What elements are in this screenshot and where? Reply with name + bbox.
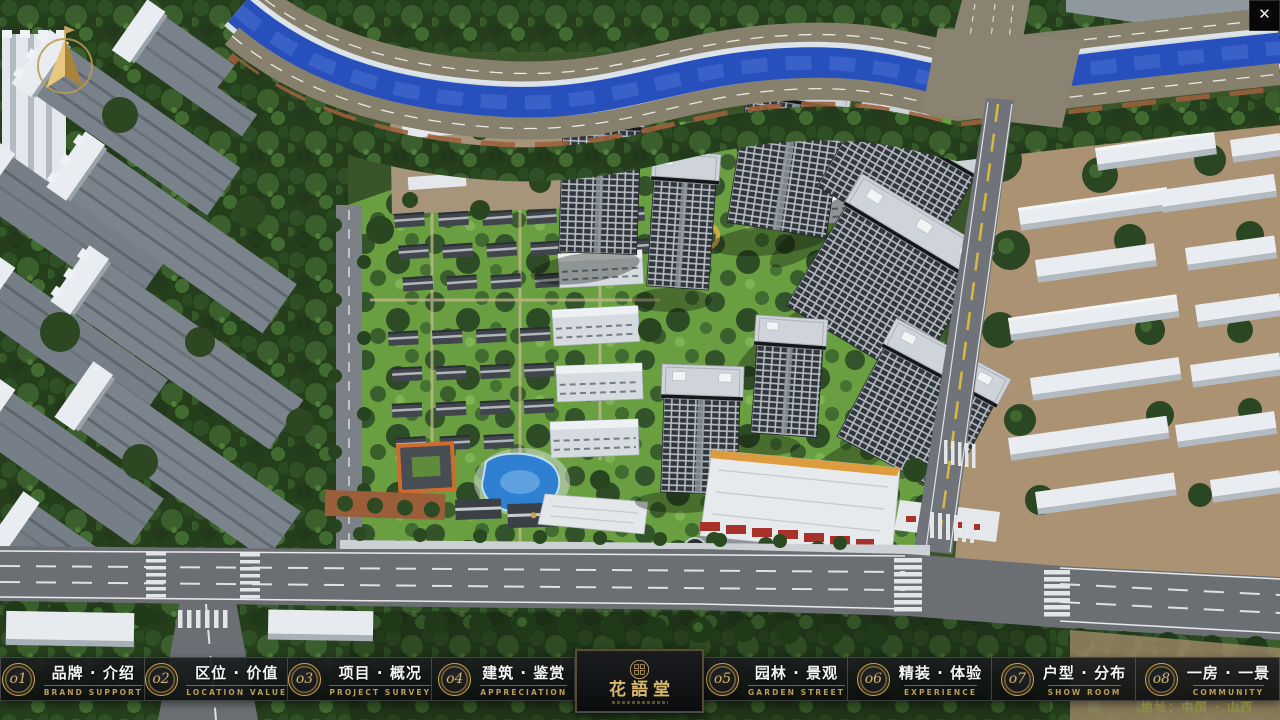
project-name-subtext <box>612 701 668 704</box>
project-address: 地址：中国 · 山西 <box>1141 699 1254 715</box>
nav-item-label-en: LOCATION VALUE <box>186 685 287 697</box>
nav-item-label-en: GARDEN STREET <box>748 685 845 697</box>
nav-item-label-zh: 建筑 · 鉴赏 <box>482 662 565 683</box>
nav-item-badge: o8 <box>1145 663 1178 696</box>
nav-item-label-en: EXPERIENCE <box>904 685 977 697</box>
nav-item-badge: o1 <box>2 663 35 696</box>
nav-item-label-zh: 项目 · 概况 <box>339 662 422 683</box>
close-button[interactable]: ✕ <box>1249 0 1280 31</box>
nav-item-badge: o7 <box>1001 663 1034 696</box>
nav-item-label-en: APPRECIATION <box>480 685 567 697</box>
nav-item-04-architecture[interactable]: o4 建筑 · 鉴赏APPRECIATION <box>432 658 576 700</box>
nav-item-badge: o2 <box>145 663 178 696</box>
nav-item-02-location[interactable]: o2 区位 · 价值LOCATION VALUE <box>145 658 289 700</box>
nav-item-label-zh: 区位 · 价值 <box>195 662 278 683</box>
residential-tower <box>644 150 721 290</box>
nav-group-left: o1 品牌 · 介绍BRAND SUPPORT o2 区位 · 价值LOCATI… <box>0 658 575 700</box>
seal-icon <box>629 659 650 680</box>
nav-item-label-en: BRAND SUPPORT <box>44 685 143 697</box>
orange-clubhouse <box>398 443 454 492</box>
nav-item-label-zh: 户型 · 分布 <box>1043 662 1126 683</box>
site-plan-render <box>0 0 1280 720</box>
nav-item-06-interior[interactable]: o6 精装 · 体验EXPERIENCE <box>848 658 992 700</box>
nav-item-01-brand[interactable]: o1 品牌 · 介绍BRAND SUPPORT <box>0 658 145 700</box>
presentation-stage: ✕ o1 品牌 · 介绍BRAND SUPPORT o2 区位 · 价值LOCA… <box>0 0 1280 720</box>
project-logo-panel[interactable]: 花語堂 <box>575 649 704 713</box>
nav-group-right: o5 园林 · 景观GARDEN STREET o6 精装 · 体验EXPERI… <box>704 658 1280 700</box>
project-name: 花語堂 <box>604 682 675 699</box>
bottom-navbar: o1 品牌 · 介绍BRAND SUPPORT o2 区位 · 价值LOCATI… <box>0 657 1280 701</box>
nav-item-label-zh: 精装 · 体验 <box>899 662 982 683</box>
nav-item-label-zh: 园林 · 景观 <box>755 662 838 683</box>
nav-item-label-zh: 一房 · 一景 <box>1187 662 1270 683</box>
nav-item-08-views[interactable]: o8 一房 · 一景COMMUNITY <box>1136 658 1279 700</box>
nav-item-07-floorplans[interactable]: o7 户型 · 分布SHOW ROOM <box>992 658 1136 700</box>
residential-tower <box>748 315 828 438</box>
nav-item-badge: o6 <box>857 663 890 696</box>
nav-item-badge: o5 <box>706 663 739 696</box>
nav-item-label-en: PROJECT SURVEY <box>329 685 431 697</box>
nav-item-label-zh: 品牌 · 介绍 <box>52 662 135 683</box>
nav-item-05-garden[interactable]: o5 园林 · 景观GARDEN STREET <box>704 658 848 700</box>
nav-item-badge: o3 <box>288 663 321 696</box>
nav-item-badge: o4 <box>438 663 471 696</box>
nav-item-label-en: SHOW ROOM <box>1048 685 1122 697</box>
nav-item-label-en: COMMUNITY <box>1193 685 1264 697</box>
nav-item-03-project[interactable]: o3 项目 · 概况PROJECT SURVEY <box>288 658 432 700</box>
